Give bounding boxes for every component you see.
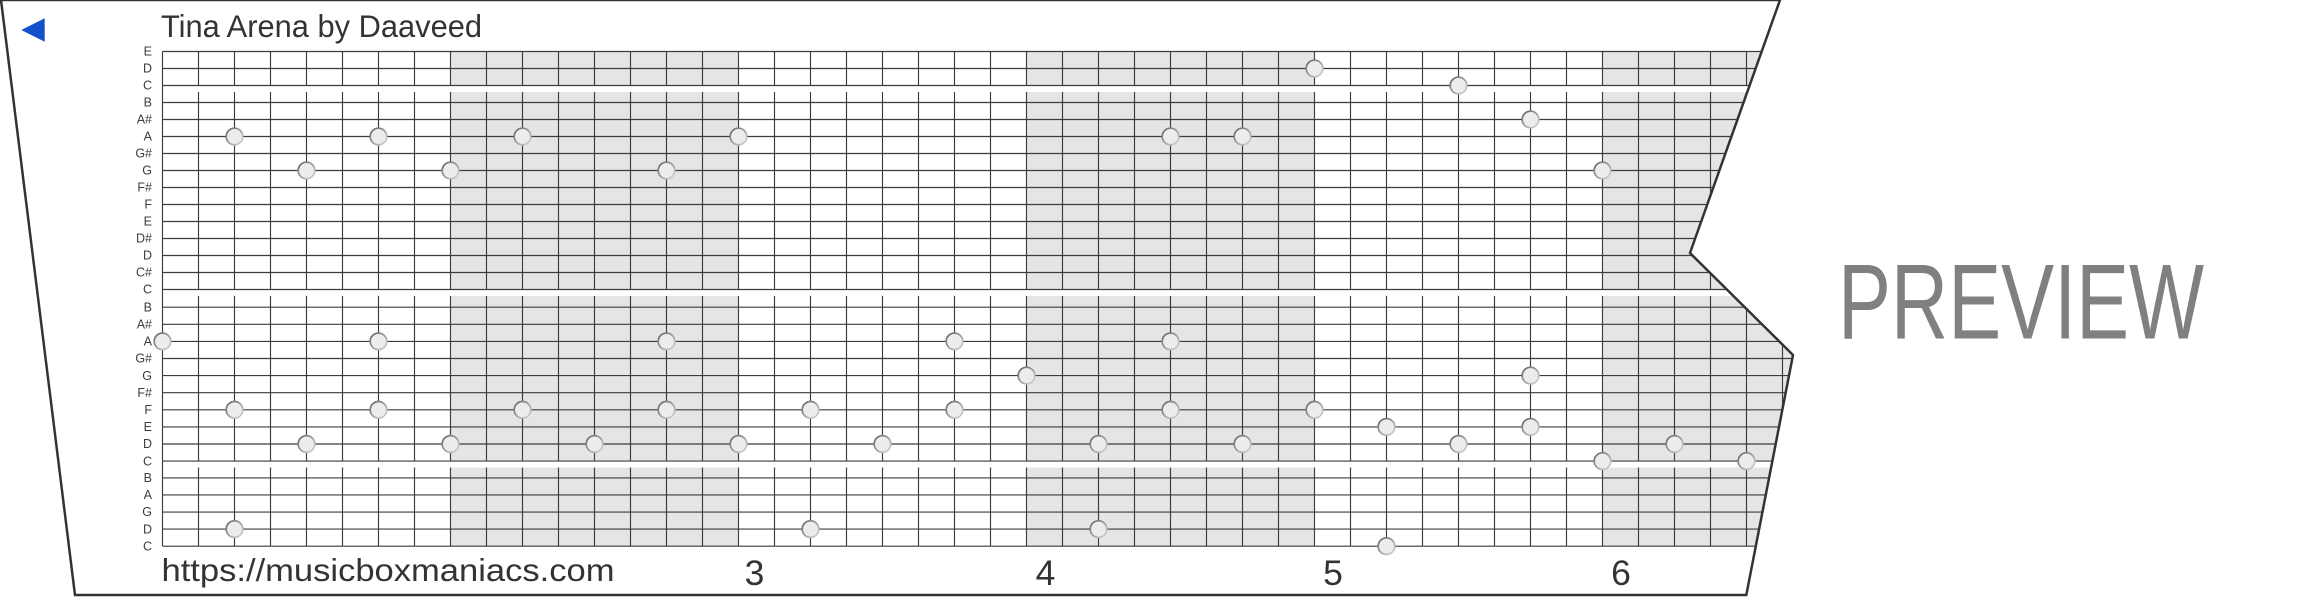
svg-text:F#: F# [137, 181, 152, 195]
svg-text:Tina Arena by Daaveed: Tina Arena by Daaveed [161, 8, 482, 44]
svg-text:E: E [144, 420, 152, 434]
svg-text:C: C [143, 283, 152, 297]
svg-text:5: 5 [1323, 553, 1343, 593]
svg-text:G: G [142, 369, 152, 383]
svg-text:4: 4 [1036, 553, 1056, 593]
svg-text:F: F [144, 198, 152, 212]
svg-text:C: C [143, 539, 152, 553]
svg-text:A: A [144, 488, 153, 502]
svg-text:6: 6 [1611, 553, 1631, 593]
svg-text:PREVIEW: PREVIEW [1838, 242, 2204, 362]
svg-text:G: G [142, 164, 152, 178]
svg-text:D: D [143, 249, 152, 263]
svg-text:D: D [143, 522, 152, 536]
svg-text:A: A [144, 130, 153, 144]
svg-text:https://musicboxmaniacs.com: https://musicboxmaniacs.com [162, 552, 615, 588]
svg-text:B: B [144, 471, 152, 485]
svg-text:D: D [143, 62, 152, 76]
svg-text:C: C [143, 454, 152, 468]
svg-text:C#: C# [136, 266, 152, 280]
svg-text:D: D [143, 437, 152, 451]
svg-text:E: E [144, 45, 152, 59]
svg-text:D#: D# [136, 232, 152, 246]
svg-text:F: F [144, 403, 152, 417]
svg-text:A#: A# [137, 113, 152, 127]
svg-text:A: A [144, 335, 153, 349]
svg-text:G: G [142, 505, 152, 519]
svg-text:A#: A# [137, 318, 152, 332]
svg-text:F#: F# [137, 386, 152, 400]
svg-text:3: 3 [745, 553, 765, 593]
svg-text:E: E [144, 215, 152, 229]
svg-text:B: B [144, 96, 152, 110]
svg-text:G#: G# [135, 352, 152, 366]
svg-text:G#: G# [135, 147, 152, 161]
svg-text:C: C [143, 79, 152, 93]
svg-text:B: B [144, 300, 152, 314]
